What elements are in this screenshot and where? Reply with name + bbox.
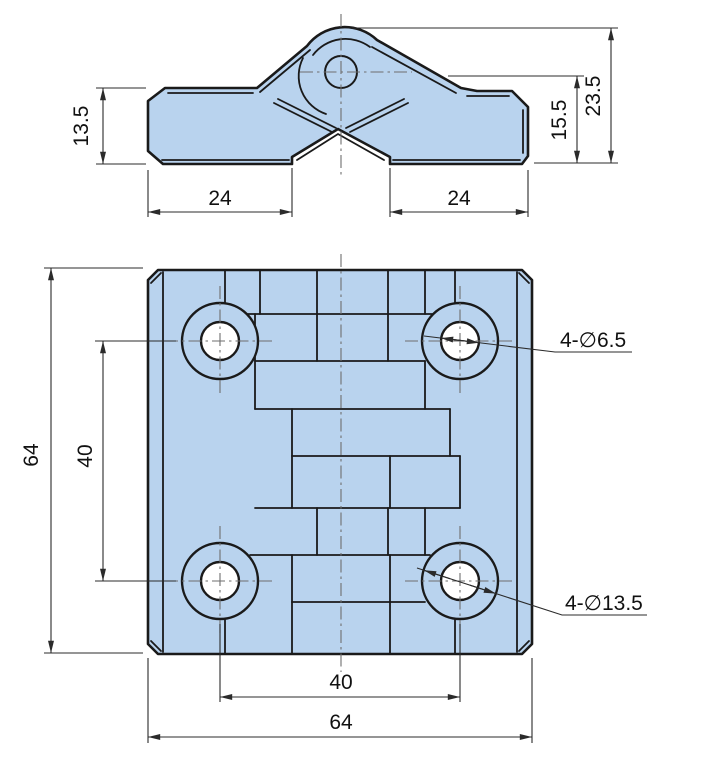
front-view: 13.5 24 24 15.5 23.5 bbox=[70, 14, 618, 217]
dim-label-13-5: 13.5 bbox=[70, 106, 93, 147]
dim-label-15-5: 15.5 bbox=[548, 100, 571, 141]
dim-front-left-height: 13.5 bbox=[70, 88, 146, 164]
dim-front-right-width: 24 bbox=[390, 168, 528, 217]
dim-front-left-width: 24 bbox=[148, 168, 292, 217]
dim-label-64-bottom: 64 bbox=[329, 711, 353, 734]
callout-label-small-holes: 4-∅6.5 bbox=[560, 329, 626, 352]
dim-label-64-left: 64 bbox=[20, 443, 43, 467]
dim-label-24-left: 24 bbox=[208, 187, 232, 210]
dim-label-23-5: 23.5 bbox=[582, 76, 605, 117]
dim-label-40-left: 40 bbox=[74, 444, 97, 467]
hinge-technical-drawing: 13.5 24 24 15.5 23.5 bbox=[0, 0, 717, 771]
dim-label-24-right: 24 bbox=[447, 187, 471, 210]
plan-view: 64 40 40 64 4-∅6.5 bbox=[20, 254, 647, 743]
drawing-canvas: 13.5 24 24 15.5 23.5 bbox=[0, 0, 717, 771]
dim-label-40-bottom: 40 bbox=[329, 671, 352, 694]
callout-label-large-holes: 4-∅13.5 bbox=[565, 592, 643, 615]
